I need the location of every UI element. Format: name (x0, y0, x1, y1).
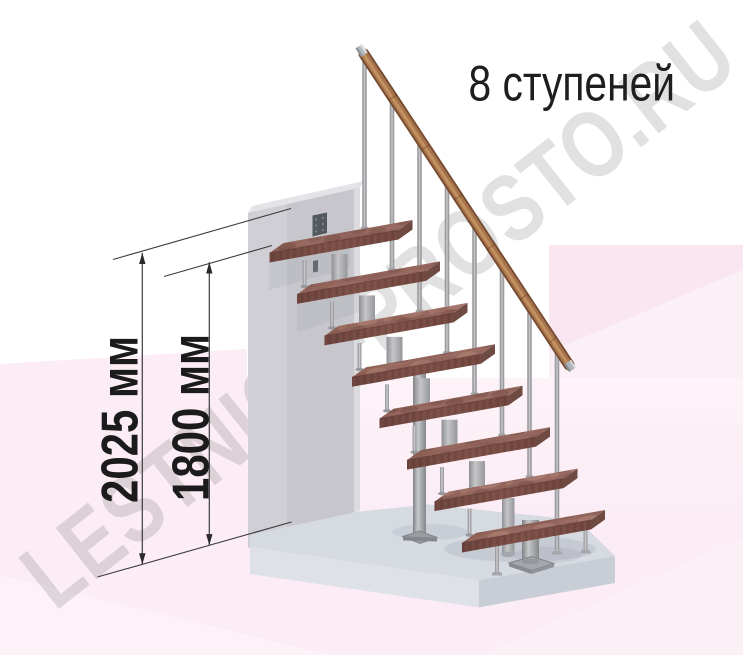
svg-text:2025 мм: 2025 мм (90, 336, 148, 503)
svg-text:8 ступеней: 8 ступеней (469, 55, 676, 111)
svg-text:1800 мм: 1800 мм (161, 334, 219, 501)
